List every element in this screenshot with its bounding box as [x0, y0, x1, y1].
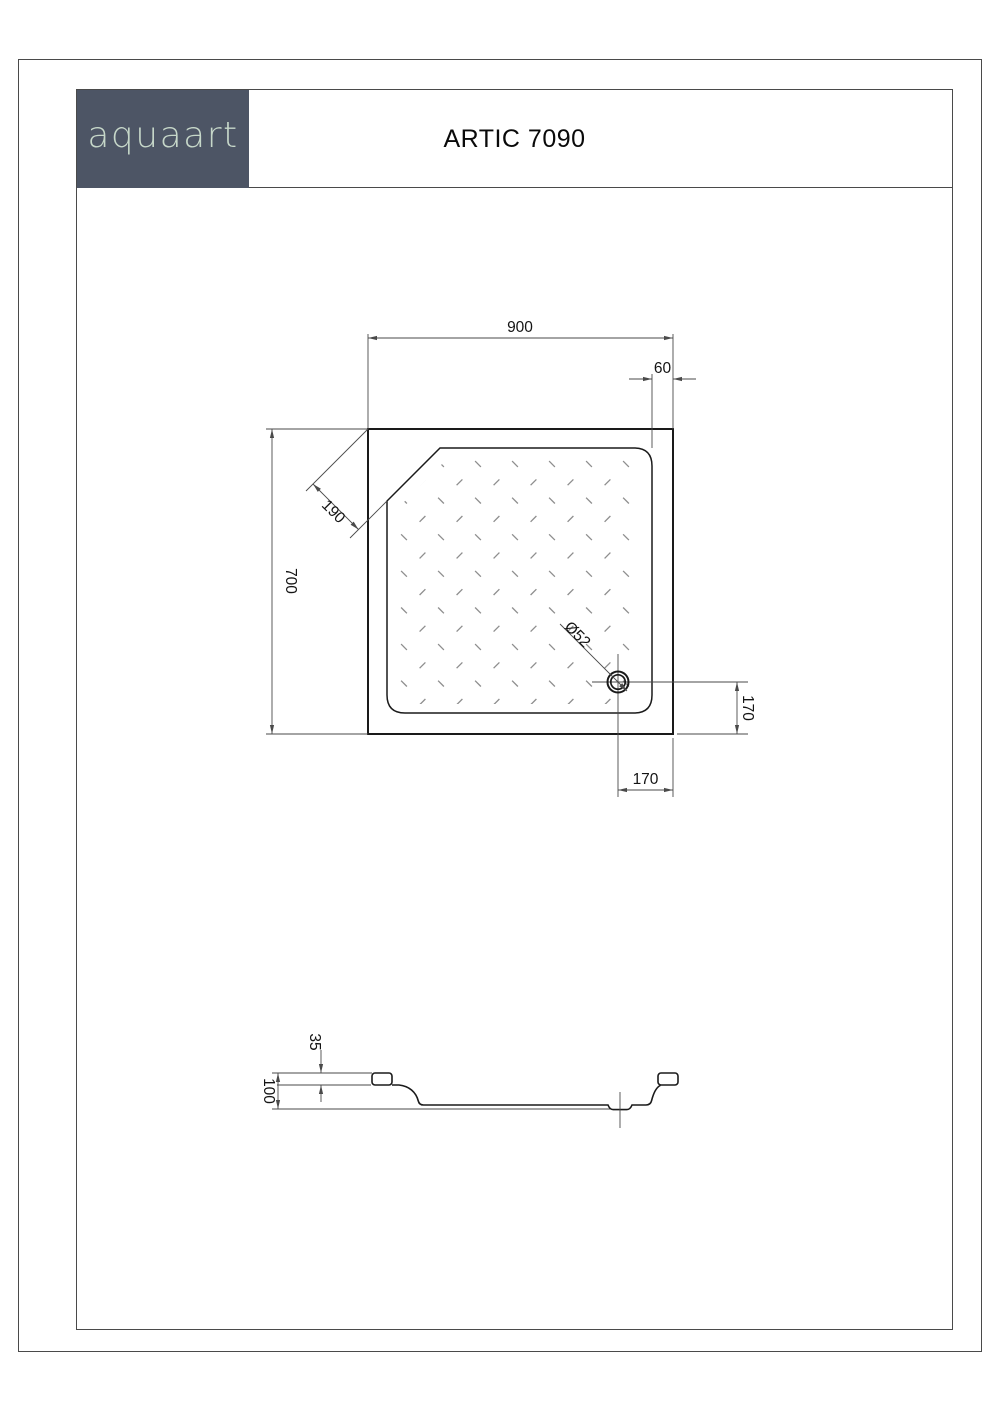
plan-view: 900 60 700	[266, 319, 756, 797]
anti-slip-pattern	[401, 461, 629, 705]
anti-slip-dash	[549, 534, 555, 540]
anti-slip-dash	[494, 589, 500, 595]
dim-width-label: 900	[507, 319, 533, 336]
anti-slip-dash	[475, 461, 481, 467]
anti-slip-dash	[549, 608, 555, 614]
anti-slip-dash	[420, 589, 426, 595]
datasheet-page: ARTIC 7090 aquaart	[0, 0, 1000, 1414]
anti-slip-dash	[605, 516, 611, 522]
dim-rim-label: 60	[654, 360, 672, 377]
anti-slip-dash	[568, 589, 574, 595]
anti-slip-dash	[623, 571, 629, 577]
anti-slip-dash	[475, 681, 481, 687]
left-rim-lip	[372, 1073, 392, 1085]
anti-slip-dash	[494, 479, 500, 485]
anti-slip-dash	[401, 644, 407, 650]
anti-slip-dash	[623, 644, 629, 650]
anti-slip-dash	[494, 699, 500, 705]
anti-slip-dash	[420, 516, 426, 522]
dim-corner-cut: 190	[306, 429, 387, 538]
anti-slip-dash	[512, 571, 518, 577]
anti-slip-dash	[475, 644, 481, 650]
anti-slip-dash	[457, 699, 463, 705]
anti-slip-dash	[420, 479, 426, 485]
anti-slip-dash	[531, 626, 537, 632]
anti-slip-dash	[401, 461, 407, 467]
anti-slip-dash	[568, 553, 574, 559]
anti-slip-dash	[586, 534, 592, 540]
anti-slip-dash	[549, 571, 555, 577]
anti-slip-dash	[401, 571, 407, 577]
anti-slip-dash	[420, 699, 426, 705]
anti-slip-dash	[623, 608, 629, 614]
anti-slip-dash	[549, 644, 555, 650]
anti-slip-dash	[420, 662, 426, 668]
anti-slip-dash	[512, 534, 518, 540]
anti-slip-dash	[586, 681, 592, 687]
anti-slip-dash	[605, 626, 611, 632]
anti-slip-dash	[531, 662, 537, 668]
anti-slip-dash	[494, 662, 500, 668]
anti-slip-dash	[512, 644, 518, 650]
drain-diameter-leader: Ø52	[560, 618, 627, 691]
anti-slip-dash	[401, 681, 407, 687]
anti-slip-dash	[568, 662, 574, 668]
anti-slip-dash	[605, 553, 611, 559]
anti-slip-dash	[512, 681, 518, 687]
dim-drain-offset-side-label: 170	[739, 695, 756, 721]
anti-slip-dash	[475, 571, 481, 577]
anti-slip-dash	[531, 516, 537, 522]
drain	[592, 654, 748, 797]
anti-slip-dash	[401, 534, 407, 540]
dim-total-height-label: 100	[260, 1078, 277, 1104]
anti-slip-dash	[605, 662, 611, 668]
anti-slip-dash	[512, 498, 518, 504]
anti-slip-dash	[494, 553, 500, 559]
anti-slip-dash	[457, 662, 463, 668]
anti-slip-dash	[531, 479, 537, 485]
anti-slip-dash	[457, 553, 463, 559]
anti-slip-dash	[420, 553, 426, 559]
anti-slip-dash	[549, 681, 555, 687]
anti-slip-dash	[420, 626, 426, 632]
dim-drain-offset-bottom-label: 170	[633, 771, 659, 788]
anti-slip-dash	[623, 461, 629, 467]
anti-slip-dash	[549, 461, 555, 467]
anti-slip-dash	[475, 608, 481, 614]
dim-depth-label: 700	[282, 568, 299, 594]
anti-slip-dash	[401, 498, 407, 504]
anti-slip-dash	[586, 608, 592, 614]
anti-slip-dash	[438, 681, 444, 687]
dim-corner-cut-label: 190	[318, 497, 349, 528]
anti-slip-dash	[494, 626, 500, 632]
anti-slip-dash	[457, 589, 463, 595]
anti-slip-dash	[475, 534, 481, 540]
anti-slip-dash	[494, 516, 500, 522]
anti-slip-dash	[586, 571, 592, 577]
anti-slip-dash	[568, 479, 574, 485]
anti-slip-dash	[623, 534, 629, 540]
anti-slip-dash	[605, 699, 611, 705]
anti-slip-dash	[438, 461, 444, 467]
anti-slip-dash	[438, 608, 444, 614]
anti-slip-dash	[531, 699, 537, 705]
anti-slip-dash	[531, 589, 537, 595]
anti-slip-dash	[512, 461, 518, 467]
anti-slip-dash	[438, 534, 444, 540]
anti-slip-dash	[568, 699, 574, 705]
anti-slip-dash	[549, 498, 555, 504]
anti-slip-dash	[568, 516, 574, 522]
anti-slip-dash	[475, 498, 481, 504]
dim-rim-height-label: 35	[306, 1033, 323, 1050]
dim-width: 900	[368, 319, 673, 429]
right-rim-lip	[658, 1073, 678, 1085]
anti-slip-dash	[438, 571, 444, 577]
anti-slip-dash	[512, 608, 518, 614]
dim-rim: 60	[629, 360, 696, 448]
anti-slip-dash	[605, 589, 611, 595]
anti-slip-dash	[623, 498, 629, 504]
anti-slip-dash	[531, 553, 537, 559]
anti-slip-dash	[438, 498, 444, 504]
anti-slip-dash	[586, 461, 592, 467]
dim-drain-offset-side: 170	[677, 682, 756, 734]
anti-slip-dash	[401, 608, 407, 614]
anti-slip-dash	[457, 626, 463, 632]
anti-slip-dash	[605, 479, 611, 485]
dim-total-height: 100	[260, 1073, 280, 1109]
dim-rim-height: 35	[306, 1033, 323, 1102]
anti-slip-dash	[457, 516, 463, 522]
anti-slip-dash	[438, 644, 444, 650]
side-view: 35 100	[260, 1033, 678, 1128]
dim-drain-offset-bottom: 170	[618, 738, 673, 797]
dim-depth: 700	[266, 429, 368, 734]
anti-slip-dash	[586, 498, 592, 504]
anti-slip-dash	[457, 479, 463, 485]
technical-drawing: 900 60 700	[0, 0, 1000, 1414]
